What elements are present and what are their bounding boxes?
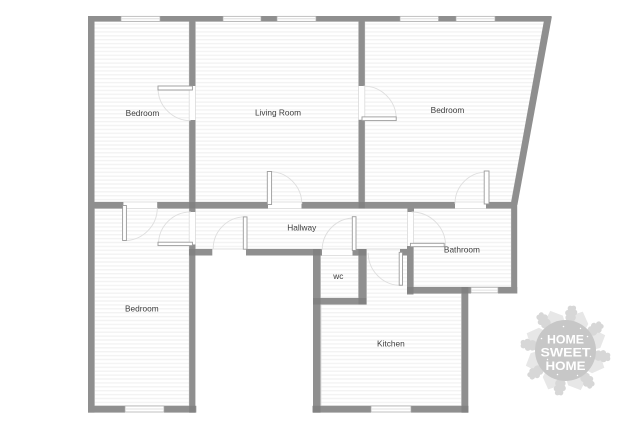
svg-text:Bedroom: Bedroom — [125, 303, 159, 313]
svg-text:Bathroom: Bathroom — [444, 244, 480, 254]
svg-text:Living Room: Living Room — [255, 107, 301, 117]
svg-text:wc: wc — [332, 271, 343, 281]
svg-text:HOME: HOME — [547, 333, 584, 347]
svg-text:Kitchen: Kitchen — [377, 339, 405, 349]
svg-text:Bedroom: Bedroom — [431, 105, 465, 115]
svg-text:Bedroom: Bedroom — [126, 108, 160, 118]
svg-text:SWEET: SWEET — [541, 346, 592, 360]
svg-text:HOME: HOME — [546, 359, 586, 373]
svg-text:Hallway: Hallway — [287, 223, 317, 233]
